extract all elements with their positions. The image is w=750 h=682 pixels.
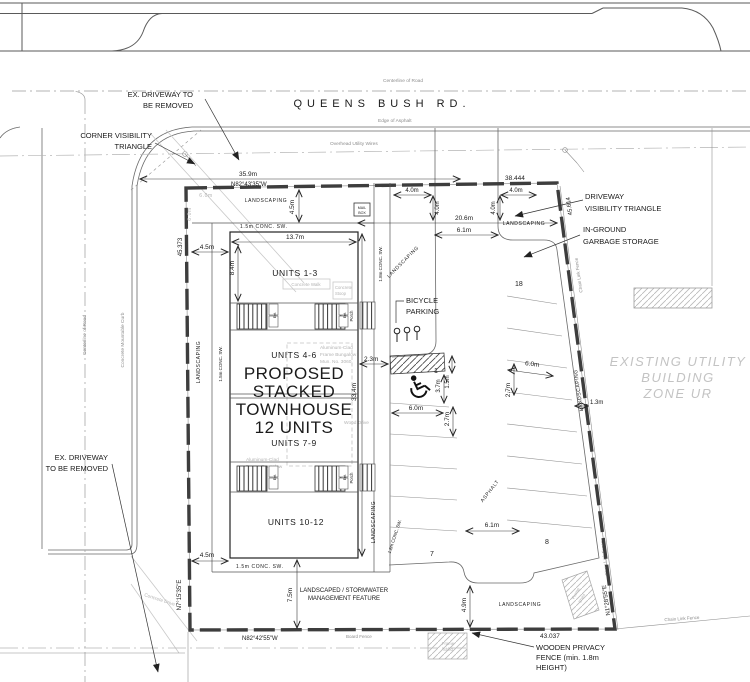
concrete-stoop-label: Concrete — [335, 285, 353, 290]
stall-number: 8 — [545, 539, 549, 546]
existing-utility-zone-label: BUILDING — [641, 370, 714, 385]
landscaping-label: LANDSCAPING — [503, 221, 545, 227]
frame-shed — [428, 633, 467, 659]
dim-1-3: 1.3m — [590, 400, 603, 406]
ex-driveway-top-label: BE REMOVED — [143, 101, 194, 110]
sidewalk-label: 1.8m CONC. SW. — [387, 519, 403, 554]
centerline-label: Centerline of Road — [383, 78, 423, 84]
road-name: QUEENS BUSH RD. — [293, 98, 470, 110]
length-west: 45.373 — [178, 237, 184, 256]
dim-4-0: 4.0m — [435, 201, 441, 214]
dim-1-5: 1.5m — [445, 375, 451, 388]
dim-3-7: 3.7m — [436, 379, 442, 392]
bicycle-parking-label: PARKING — [406, 307, 439, 316]
concrete-drive-label: Concrete Drive — [143, 592, 176, 608]
entrance-label: Ent. — [343, 312, 347, 318]
frame-shed-label: Frame — [442, 641, 455, 646]
chain-link-fence-label: Chain Link Fence — [574, 257, 584, 293]
dim-13-7: 13.7m — [286, 234, 304, 241]
chain-link-fence-line — [560, 186, 618, 630]
dim-35-9: 35.9m — [239, 171, 257, 178]
dim-33-4: 33.4m — [351, 383, 358, 401]
centerline-label-vertical: Centerline of Road — [82, 315, 88, 355]
bearing-south: N82°42'55"W — [242, 636, 278, 642]
units-1-3-label: UNITS 1-3 — [272, 268, 318, 278]
stall-number: 18 — [515, 281, 523, 288]
existing-utility-building — [634, 288, 712, 308]
ex-driveway-top-label: EX. DRIVEWAY TO — [128, 90, 194, 99]
in-ground-garbage-label: GARBAGE STORAGE — [583, 237, 659, 246]
dim-6-0-faint: 6.0m — [187, 207, 193, 221]
existing-utility-zone-label: ZONE UR — [643, 386, 713, 401]
building-title: PROPOSED — [244, 364, 344, 383]
sidewalk-label: 1.5m CONC. SW. — [236, 564, 284, 570]
stall-number: 7 — [430, 551, 434, 558]
dim-6-1: 6.1m — [485, 522, 499, 529]
dim-2-7: 2.7m — [505, 383, 512, 397]
bearing-west: N7°15'35"E — [177, 580, 183, 611]
porch-label: Porch — [349, 472, 354, 484]
entrance-stairs — [237, 466, 267, 491]
dim-6-0-faint: 6.0m — [199, 193, 213, 199]
entrance-stairs — [237, 304, 267, 329]
wooden-fence-label: HEIGHT) — [536, 663, 567, 672]
dim-7-5: 7.5m — [287, 588, 294, 602]
stormwater-label: LANDSCAPED / STORMWATER — [300, 588, 389, 594]
concrete-walk-label: Concrete Walk — [291, 282, 321, 287]
length-north: 38.444 — [505, 175, 525, 182]
landscaping-label: LANDSCAPING — [371, 501, 377, 543]
dim-4-0: 4.0m — [405, 188, 418, 194]
entrance-label: Ent. — [343, 474, 347, 480]
landscaping-label: LANDSCAPING — [499, 602, 541, 608]
porch-label: Porch — [349, 310, 354, 322]
landscaping-label: LANDSCAPING — [196, 341, 202, 383]
bicycle-parking-label: BICYCLE — [406, 296, 438, 305]
mountable-curb-label: Concrete Mountable Curb — [120, 312, 126, 367]
length-south: 43.037 — [540, 633, 560, 640]
wooden-fence-label: FENCE (min. 1.8m — [536, 653, 599, 662]
existing-utility-zone-label: EXISTING UTILITY — [610, 354, 747, 369]
bicycle-rack-icons — [394, 326, 420, 342]
ex-driveway-left-label: TO BE REMOVED — [46, 464, 109, 473]
mailbox-label: MAIL — [358, 206, 366, 210]
entrance-label: Ent. — [273, 474, 277, 480]
overhead-utility-wires-line — [0, 147, 750, 156]
in-ground-garbage-label: IN-GROUND — [583, 225, 627, 234]
site-plan-drawing: QUEENS BUSH RD. Centerline of Road Edge … — [0, 0, 750, 682]
dim-4-5: 4.5m — [200, 244, 214, 251]
driveway-visibility-label: VISIBILITY TRIANGLE — [585, 204, 661, 213]
ex-driveway-left-label: EX. DRIVEWAY — [55, 453, 108, 462]
building-title: 12 UNITS — [255, 418, 334, 437]
units-4-6-label: UNITS 4-6 — [271, 350, 317, 360]
building-title: TOWNHOUSE — [236, 400, 353, 419]
stormwater-label: MANAGEMENT FEATURE — [308, 596, 380, 602]
wooden-fence-label: WOODEN PRIVACY — [536, 643, 605, 652]
entrance-label: Ent. — [273, 312, 277, 318]
corner-visibility-label: TRIANGLE — [114, 142, 152, 151]
dim-2-3: 2.3m — [364, 356, 378, 363]
dim-4-5: 4.5m — [289, 200, 296, 214]
corner-visibility-label: CORNER VISIBILITY — [80, 131, 152, 140]
wood-drive-label: Wood Drive — [344, 420, 369, 426]
edge-of-asphalt-label: Edge of Asphalt — [378, 118, 412, 124]
board-fence-label: Board Fence — [346, 634, 372, 639]
landscaping-label: LANDSCAPING — [245, 198, 287, 204]
dim-4-9: 4.9m — [461, 598, 468, 612]
concrete-stoop-label: Stoop — [335, 291, 347, 296]
dim-2-7: 2.7m — [444, 412, 451, 426]
landscaping-label: LANDSCAPING — [386, 245, 420, 279]
bungalow-label: Frame Bungalow — [320, 352, 357, 358]
driveway-visibility-label: DRIVEWAY — [585, 192, 624, 201]
dim-4-0: 4.0m — [509, 188, 522, 194]
sidewalk-label: 1.5m CONC. SW. — [218, 346, 223, 381]
length-east: 45.614 — [566, 196, 575, 216]
property-boundary: 35.9m N82°43'35"W 38.444 45.614 45.373 N… — [131, 130, 615, 642]
dim-6-1: 6.1m — [457, 227, 471, 234]
building-title: STACKED — [253, 382, 336, 401]
units-10-12-label: UNITS 10-12 — [268, 517, 324, 527]
dim-8-4: 8.4m — [229, 261, 236, 275]
sidewalk-label: 1.8m CONC. SW. — [378, 246, 383, 281]
wheelchair-icon — [406, 372, 431, 400]
bearing-north: N82°43'35"W — [231, 182, 267, 188]
asphalt-label: ASPHALT — [480, 479, 501, 504]
stall-number: 1 — [434, 368, 438, 375]
dim-6-0: 6.0m — [525, 360, 540, 369]
dim-4-5: 4.5m — [200, 552, 214, 559]
bungalow-label: Aluminum-Clad — [320, 345, 353, 351]
dim-20-6: 20.6m — [455, 215, 473, 222]
sidewalk-label: 1.5m CONC. SW. — [240, 224, 288, 230]
dim-6-0: 6.0m — [409, 405, 423, 412]
dim-4-0: 4.0m — [491, 201, 497, 214]
proposed-building: Ent. Ent. Ent. Ent. Porch Porch UNITS 1-… — [230, 203, 375, 558]
roads: QUEENS BUSH RD. Centerline of Road Edge … — [0, 3, 750, 682]
overhead-wires-label: Overhead Utility Wires — [330, 141, 378, 147]
units-7-9-label: UNITS 7-9 — [271, 438, 317, 448]
mailbox-label: BOX — [358, 211, 366, 215]
